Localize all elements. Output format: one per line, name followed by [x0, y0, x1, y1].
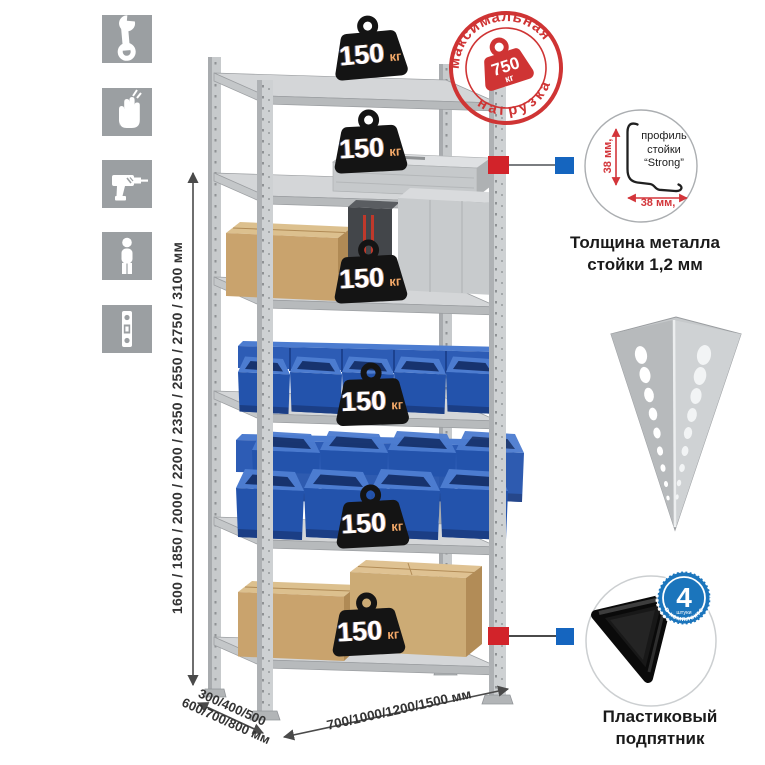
profile-label-line2: стойки [634, 144, 694, 158]
plastic-foot-caption: Пластиковый подпятник [585, 706, 735, 749]
load-unit: кг [391, 397, 403, 412]
blue-marker-square [556, 628, 574, 645]
load-value: 150 [341, 386, 387, 418]
caption-line: Толщина металла [570, 232, 720, 254]
load-unit: кг [387, 626, 400, 642]
profile-label-line1: профиль [634, 130, 694, 144]
top-callout-connector [488, 156, 574, 174]
profile-label-line3: “Strong” [634, 157, 694, 171]
load-unit: кг [389, 273, 402, 289]
load-value: 150 [336, 615, 383, 647]
profile-dim-vertical: 38 мм, [602, 132, 614, 180]
profile-label: профиль стойки “Strong” [634, 130, 694, 171]
load-value: 150 [340, 507, 387, 539]
shelf-load-badge: 150кг [315, 480, 429, 564]
max-load-stamp: 750 кг максимальная нагрузка [433, 0, 578, 138]
caption-line: подпятник [585, 728, 735, 750]
drill-icon [102, 160, 152, 208]
load-unit: кг [389, 143, 402, 159]
load-value: 150 [338, 132, 385, 164]
shelf-load-badge: 150кг [316, 359, 429, 441]
shelving-product-infographic: 4 штуки в комплекте 750 кг максимальная … [0, 0, 765, 765]
red-marker-square [488, 156, 509, 174]
badge-count: 4 [676, 582, 692, 613]
load-unit: кг [389, 48, 402, 64]
shelf-load-badge: 150кг [313, 235, 427, 319]
quantity-badge: 4 штуки в комплекте [657, 571, 711, 625]
load-value: 150 [338, 38, 386, 72]
blue-marker-square [555, 157, 574, 174]
red-marker-square [488, 627, 509, 645]
shelf-load-badge: 150кг [312, 9, 428, 96]
plastic-foot-circle: 4 штуки в комплекте [586, 571, 716, 706]
metal-angle-post [611, 317, 741, 530]
wrench-icon [102, 15, 152, 63]
shelf-load-badge: 150кг [311, 588, 425, 672]
profile-dim-horizontal: 38 мм, [630, 197, 686, 209]
level-icon [102, 305, 152, 353]
caption-line: Пластиковый [585, 706, 735, 728]
caption-line: стойки 1,2 мм [570, 254, 720, 276]
bottom-callout-connector [488, 627, 574, 645]
badge-units-label: штуки [676, 610, 691, 616]
gloves-icon [102, 88, 152, 136]
load-value: 150 [338, 262, 385, 294]
metal-thickness-caption: Толщина металла стойки 1,2 мм [570, 232, 720, 275]
person-icon [102, 232, 152, 280]
height-dimension-label: 1600 / 1850 / 2000 / 2200 / 2350 / 2550 … [169, 163, 185, 693]
shelf-load-badge: 150кг [313, 105, 427, 189]
load-unit: кг [391, 518, 404, 534]
